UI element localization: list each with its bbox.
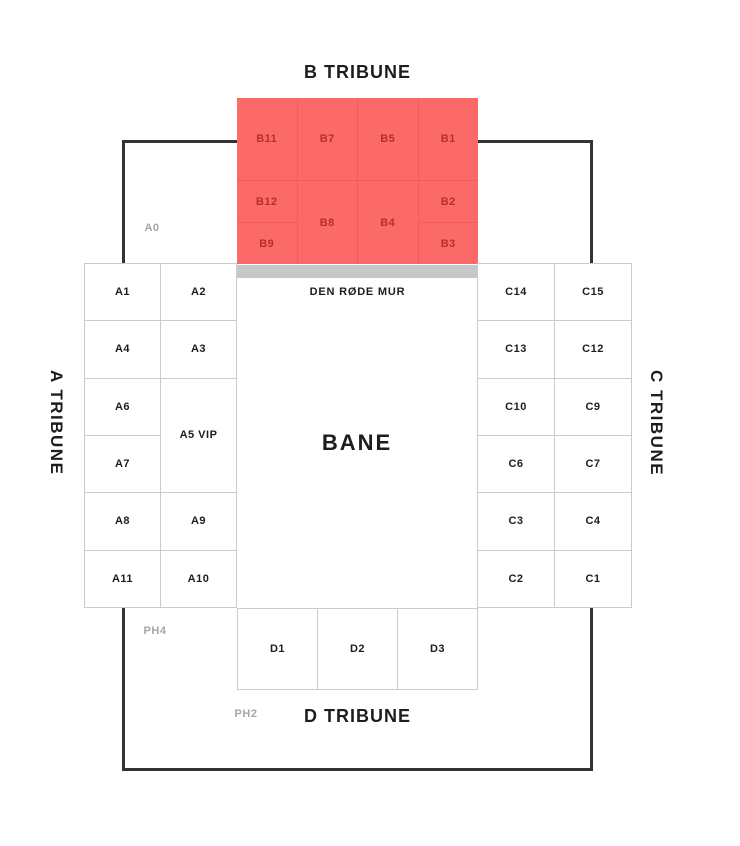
section-a2[interactable]: A2: [161, 264, 236, 320]
section-a9[interactable]: A9: [161, 493, 236, 549]
section-c4[interactable]: C4: [555, 493, 631, 549]
section-d2[interactable]: D2: [318, 609, 397, 689]
area-label-ph4: PH4: [125, 625, 185, 637]
section-b5[interactable]: B5: [358, 98, 418, 180]
section-b7[interactable]: B7: [298, 98, 358, 180]
section-b8[interactable]: B8: [298, 181, 358, 264]
pitch-area: BANE: [237, 278, 477, 608]
section-a11[interactable]: A11: [85, 551, 160, 607]
area-label-a0: A0: [122, 222, 182, 234]
section-b1[interactable]: B1: [419, 98, 479, 180]
red-wall-bar: [237, 265, 478, 278]
section-c7[interactable]: C7: [555, 436, 631, 492]
section-a8[interactable]: A8: [85, 493, 160, 549]
section-a4[interactable]: A4: [85, 321, 160, 377]
section-c9[interactable]: C9: [555, 379, 631, 435]
a-tribune-title: A TRIBUNE: [46, 370, 66, 475]
section-c2[interactable]: C2: [478, 551, 554, 607]
section-b4[interactable]: B4: [358, 181, 418, 264]
section-b9[interactable]: B9: [237, 223, 297, 264]
section-c14[interactable]: C14: [478, 264, 554, 320]
section-a1[interactable]: A1: [85, 264, 160, 320]
section-a5-vip[interactable]: A5 VIP: [161, 379, 236, 493]
section-c10[interactable]: C10: [478, 379, 554, 435]
section-a10[interactable]: A10: [161, 551, 236, 607]
section-c6[interactable]: C6: [478, 436, 554, 492]
section-c12[interactable]: C12: [555, 321, 631, 377]
section-d3[interactable]: D3: [398, 609, 477, 689]
section-d1[interactable]: D1: [238, 609, 317, 689]
section-c13[interactable]: C13: [478, 321, 554, 377]
section-a3[interactable]: A3: [161, 321, 236, 377]
section-c1[interactable]: C1: [555, 551, 631, 607]
b-tribune-sections: B11 B7 B5 B1 B12 B8 B4 B2 B9 B3: [237, 98, 478, 264]
c-tribune-title: C TRIBUNE: [646, 370, 666, 476]
section-b2[interactable]: B2: [419, 181, 479, 222]
a-tribune-sections: A1 A2 A4 A3 A6 A5 VIP A7 A8 A9 A11 A10: [84, 263, 237, 608]
section-a7[interactable]: A7: [85, 436, 160, 492]
section-c3[interactable]: C3: [478, 493, 554, 549]
stadium-seat-map: B TRIBUNE B11 B7 B5 B1 B12 B8 B4 B2 B9 B…: [0, 0, 740, 846]
c-tribune-sections: C14 C15 C13 C12 C10 C9 C6 C7 C3 C4 C2 C1: [477, 263, 632, 608]
section-b11[interactable]: B11: [237, 98, 297, 180]
area-label-ph2: PH2: [216, 708, 276, 720]
section-b3[interactable]: B3: [419, 223, 479, 264]
section-a6[interactable]: A6: [85, 379, 160, 435]
section-b12[interactable]: B12: [237, 181, 297, 222]
b-tribune-title: B TRIBUNE: [237, 62, 478, 83]
section-c15[interactable]: C15: [555, 264, 631, 320]
d-tribune-sections: D1 D2 D3: [237, 608, 478, 690]
